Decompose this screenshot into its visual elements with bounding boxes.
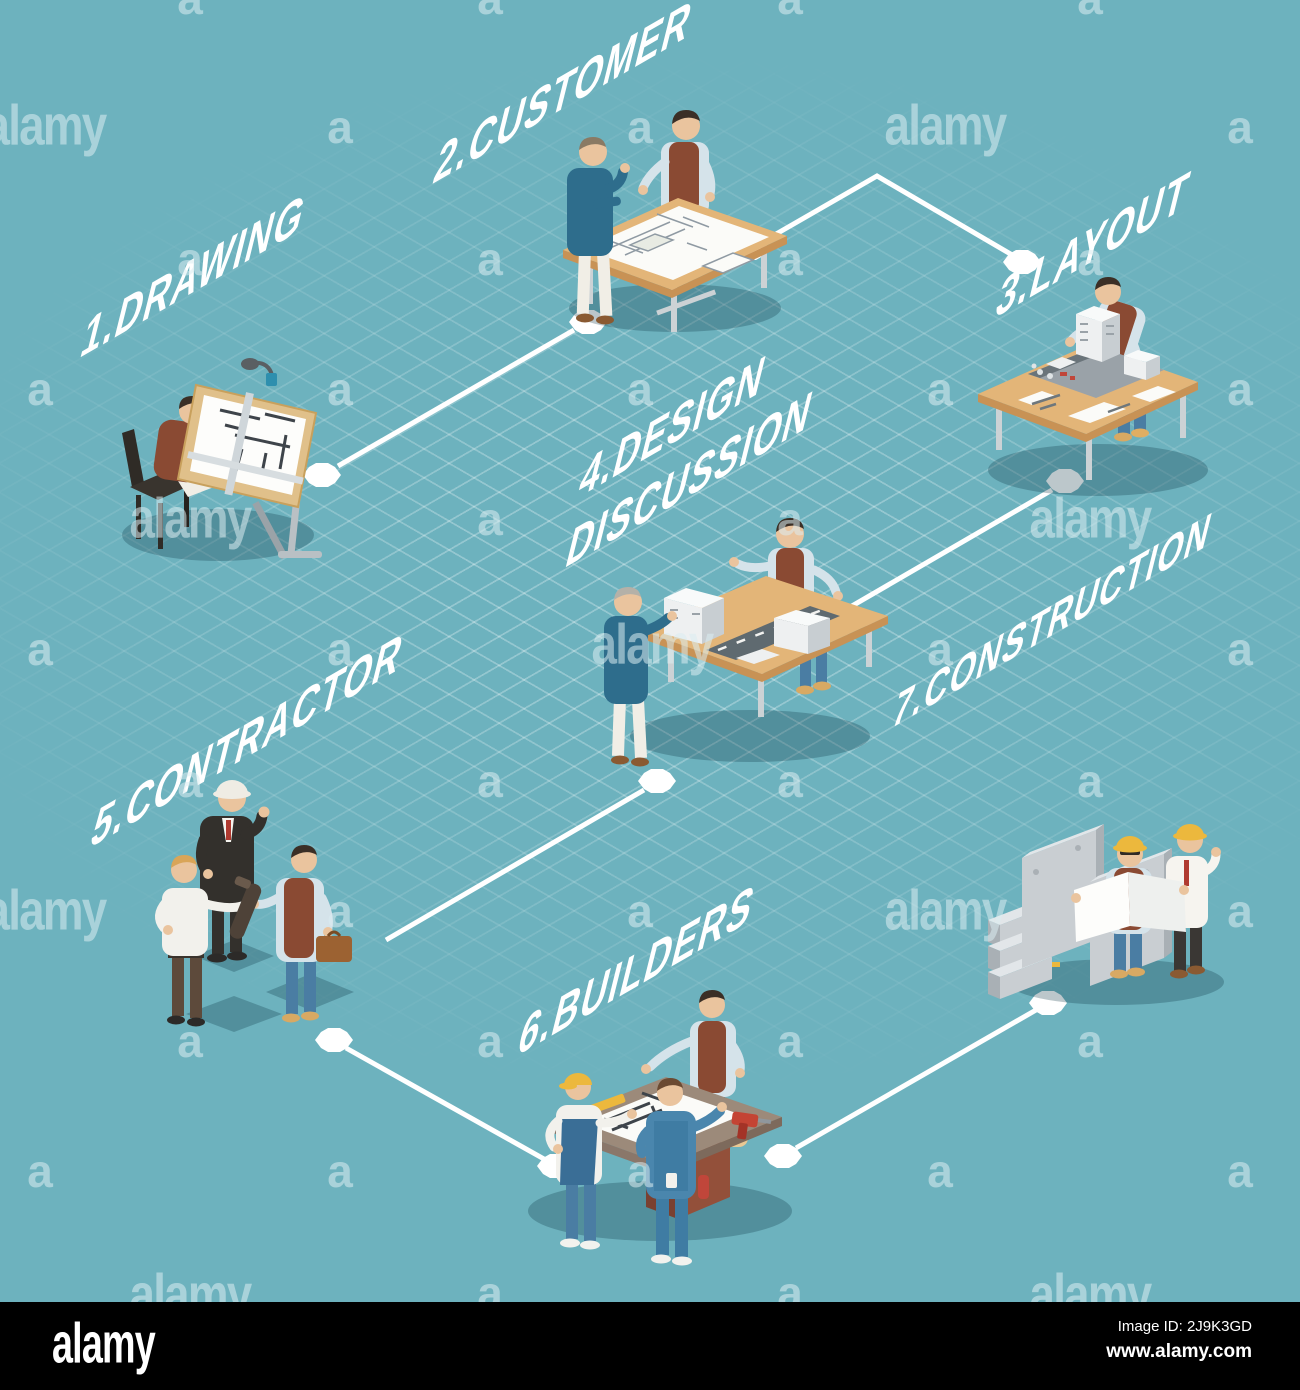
- scene-customer: [535, 100, 795, 340]
- alamy-logo: alamy: [52, 1310, 155, 1376]
- footer-bar: alamy Image ID: 2J9K3GD www.alamy.com: [0, 1302, 1300, 1390]
- illustration-canvas: 1.DRAWING 2.CUSTOMER 3.LAYOUT 4.DESIGN D…: [0, 0, 1300, 1390]
- scene-layout: [948, 274, 1248, 514]
- scene-drawing: [100, 355, 340, 580]
- scene-design: [578, 518, 908, 773]
- flow-line: [386, 790, 644, 940]
- image-id-text: Image ID: 2J9K3GD: [1106, 1318, 1252, 1335]
- flow-line: [764, 176, 1014, 256]
- flow-line: [338, 330, 574, 466]
- scene-contractor: [138, 770, 413, 1085]
- website-text: www.alamy.com: [1106, 1341, 1252, 1363]
- scene-construction: [978, 770, 1253, 1020]
